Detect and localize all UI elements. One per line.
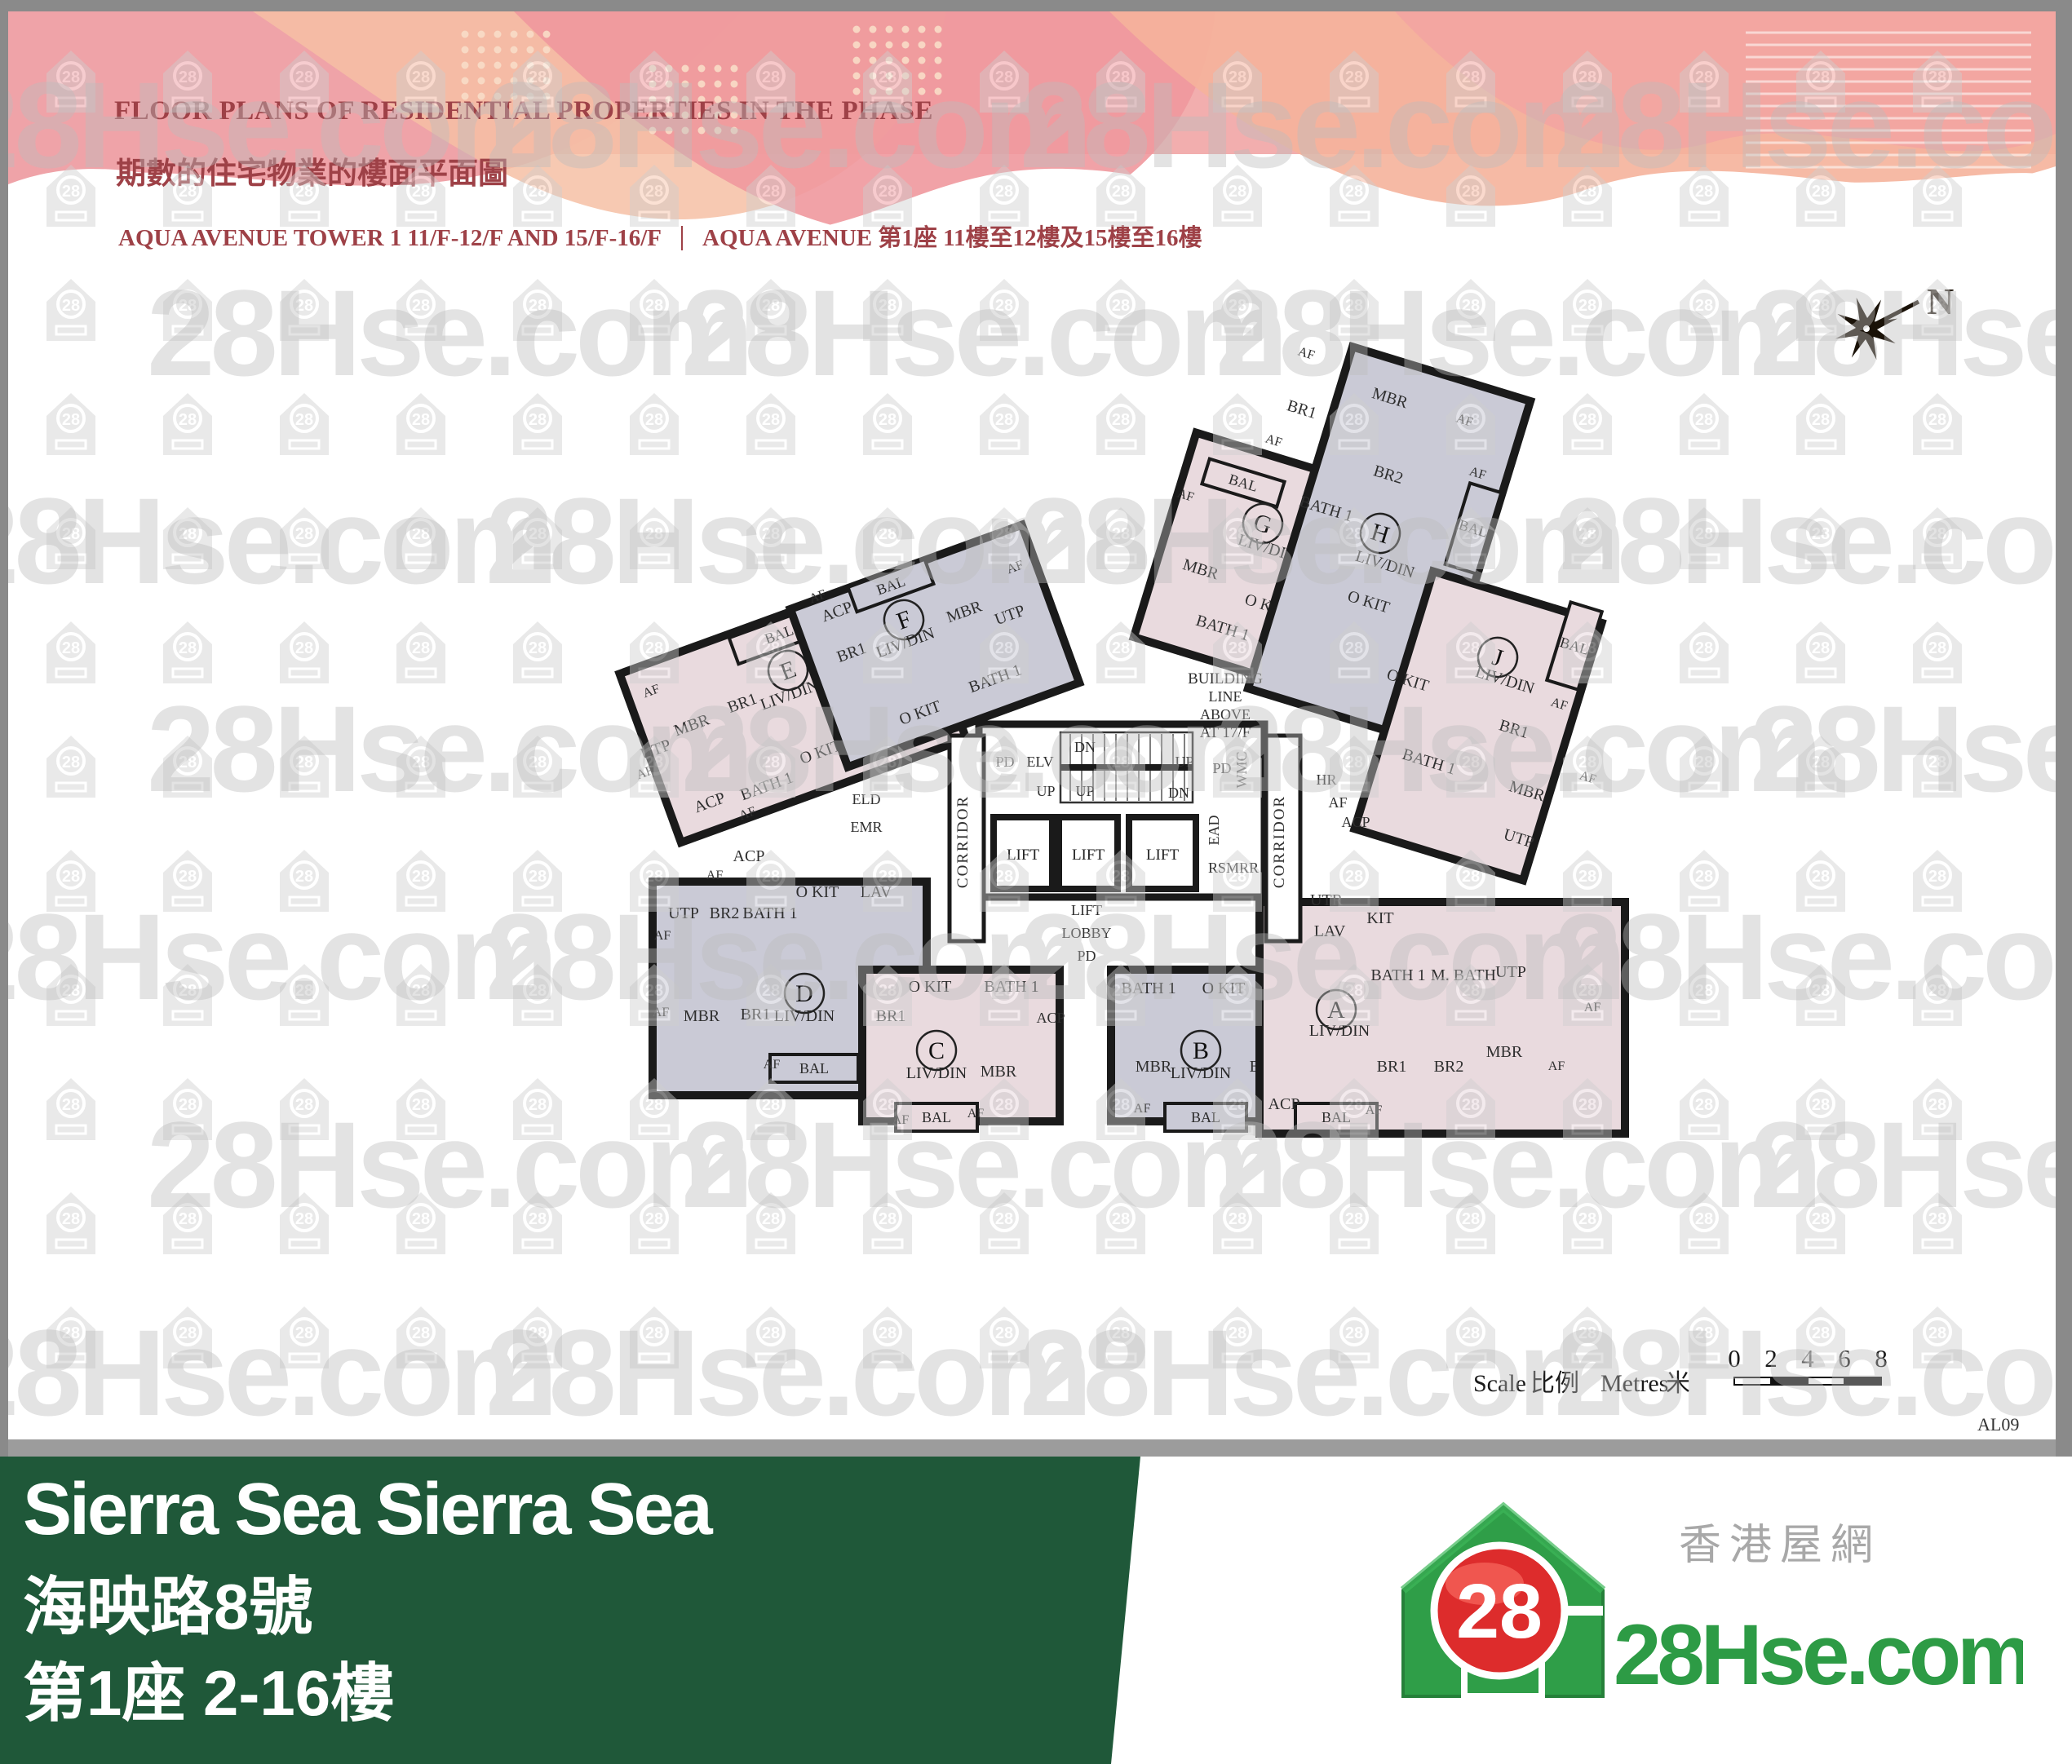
core-label: BUILDING bbox=[1188, 670, 1263, 687]
unit-B-balcony: BAL bbox=[1165, 1103, 1246, 1131]
project-tower-floors: 第1座 2-16樓 bbox=[23, 1642, 394, 1734]
core-label: ABOVE bbox=[1200, 706, 1251, 723]
scale-bar-label: 比例 bbox=[1530, 1370, 1579, 1397]
scale-tick: 6 bbox=[1838, 1344, 1851, 1373]
room-label: BR1 bbox=[1377, 1058, 1407, 1076]
room-label: BR1 bbox=[741, 1006, 771, 1023]
scale-tick: 0 bbox=[1728, 1344, 1741, 1373]
frame-right bbox=[2056, 11, 2072, 1457]
scale-tick: 2 bbox=[1764, 1344, 1778, 1373]
core-label: PD bbox=[1212, 760, 1231, 776]
room-label: AF bbox=[653, 1006, 670, 1019]
room-label: AF bbox=[706, 869, 724, 882]
svg-text:B: B bbox=[1193, 1037, 1209, 1064]
room-label: LIV/DIN bbox=[774, 1007, 835, 1025]
project-banner: Sierra Sea Sierra Sea 海映路8號 第1座 2-16樓 bbox=[0, 1457, 1142, 1764]
svg-text:BAL: BAL bbox=[922, 1109, 951, 1125]
room-label: AF bbox=[1264, 432, 1284, 450]
room-label: AF bbox=[892, 1113, 910, 1127]
svg-text:BAL: BAL bbox=[1191, 1109, 1220, 1125]
room-label: O KIT bbox=[796, 883, 839, 901]
core-label: CORRIDOR bbox=[1271, 795, 1288, 888]
room-label: AF bbox=[1548, 1059, 1565, 1073]
core-label: PD bbox=[1077, 948, 1096, 964]
site-logo: 28 28Hse.com 香港屋網 bbox=[1387, 1492, 2023, 1737]
page-code: AL09 bbox=[1977, 1414, 2019, 1435]
room-label: AF bbox=[654, 929, 671, 943]
room-label: BATH 1 bbox=[742, 904, 797, 922]
core-label: LINE bbox=[1209, 688, 1242, 705]
core-label: AT 17/F bbox=[1200, 724, 1251, 741]
svg-text:BAL: BAL bbox=[799, 1060, 829, 1077]
room-label: AF bbox=[1134, 1102, 1151, 1116]
room-label: O KIT bbox=[909, 978, 952, 996]
room-label: BATH 1 bbox=[1121, 979, 1175, 997]
room-label: BR2 bbox=[710, 904, 740, 922]
room-label: AF bbox=[1296, 345, 1317, 363]
room-label: MBR bbox=[684, 1007, 720, 1025]
core-label: LOBBY bbox=[1061, 925, 1111, 941]
room-label: AF bbox=[1366, 1103, 1383, 1117]
unit-C: BALCLIV/DINBR1O KITBATH 1MBRAFAF bbox=[862, 970, 1060, 1131]
svg-text:LIFT: LIFT bbox=[1007, 847, 1040, 864]
svg-text:LIFT: LIFT bbox=[1146, 847, 1180, 864]
floor-plan-page: FLOOR PLANS OF RESIDENTIAL PROPERTIES IN… bbox=[0, 0, 2072, 1764]
core-label: EMR bbox=[850, 819, 882, 835]
room-label: LIV/DIN bbox=[1171, 1064, 1231, 1082]
room-label: MBR bbox=[1136, 1058, 1172, 1076]
room-label: AF bbox=[764, 1058, 781, 1072]
scale-bar-label: Metres bbox=[1600, 1370, 1668, 1397]
room-label: BATH 1 bbox=[1370, 966, 1425, 984]
room-label: BATH 1 bbox=[984, 978, 1038, 996]
core-label: UP bbox=[1175, 754, 1193, 770]
room-label: AF bbox=[1584, 1001, 1601, 1015]
core-label: LIFT bbox=[1071, 902, 1102, 918]
core-label: HR bbox=[1316, 771, 1336, 788]
svg-text:C: C bbox=[928, 1037, 945, 1064]
scale-tick: 8 bbox=[1875, 1344, 1888, 1373]
core-label: RSMRR bbox=[1208, 860, 1259, 876]
room-label: LAV bbox=[1314, 922, 1346, 940]
footer-divider-band bbox=[0, 1439, 2072, 1457]
core-label: DN bbox=[1074, 739, 1096, 755]
core-label: ACP bbox=[1036, 1010, 1065, 1026]
room-label: BR1 bbox=[1285, 396, 1319, 422]
room-label: LAV bbox=[861, 883, 892, 901]
room-label: MBR bbox=[981, 1063, 1017, 1081]
scale-tick: 4 bbox=[1801, 1344, 1814, 1373]
core-label: EAD bbox=[1206, 816, 1222, 846]
project-name: Sierra Sea Sierra Sea bbox=[23, 1468, 711, 1552]
core-label: AF bbox=[1328, 794, 1347, 811]
frame-top bbox=[0, 0, 2072, 11]
core-label: DN bbox=[1168, 785, 1189, 801]
core-label: CORRIDOR bbox=[954, 795, 972, 888]
compass-north-icon: N bbox=[1835, 281, 1954, 360]
logo-badge: 28 bbox=[1456, 1568, 1543, 1655]
project-address: 海映路8號 bbox=[23, 1556, 312, 1647]
room-label: UTP bbox=[1495, 963, 1526, 981]
room-label: M. BATH bbox=[1431, 966, 1496, 984]
core-label: ELD bbox=[852, 791, 881, 807]
room-label: LIV/DIN bbox=[906, 1064, 967, 1082]
core-label: UP bbox=[1075, 783, 1094, 799]
room-label: AF bbox=[1578, 769, 1598, 787]
scale-bar-label: 米 bbox=[1666, 1370, 1690, 1397]
unit-D-balcony: BAL bbox=[770, 1054, 858, 1082]
room-label: AF bbox=[967, 1107, 985, 1121]
room-label: UTR bbox=[1310, 891, 1344, 909]
logo-text: 28Hse.com bbox=[1614, 1607, 2023, 1703]
house-logo-icon: 28 bbox=[1403, 1507, 1603, 1696]
frame-left bbox=[0, 11, 8, 1457]
room-label: ACP bbox=[733, 847, 765, 865]
room-label: BR1 bbox=[876, 1007, 906, 1025]
scale-bar-label: Scale bbox=[1473, 1370, 1526, 1397]
core-label: UP bbox=[1036, 783, 1055, 799]
room-label: LIV/DIN bbox=[1309, 1022, 1370, 1040]
room-label: ACP bbox=[1268, 1095, 1300, 1113]
svg-text:A: A bbox=[1327, 997, 1345, 1023]
room-label: BR2 bbox=[1434, 1058, 1464, 1076]
core-label: PD bbox=[995, 754, 1014, 770]
svg-text:BAL: BAL bbox=[1322, 1109, 1351, 1125]
svg-text:D: D bbox=[795, 980, 813, 1007]
svg-text:LIFT: LIFT bbox=[1072, 847, 1105, 864]
core-label: ACP bbox=[1341, 814, 1370, 830]
room-label: UTP bbox=[668, 904, 699, 922]
room-label: MBR bbox=[1486, 1043, 1523, 1061]
core-label: ELV bbox=[1026, 754, 1053, 770]
unit-A: BALALIV/DINUTRLAVKITBATH 1M. BATHUTPBR1B… bbox=[1260, 891, 1625, 1134]
scale-bar: Scale比例Metres米02468 bbox=[1473, 1344, 1888, 1397]
core-label: WMC bbox=[1233, 752, 1250, 789]
compass-label: N bbox=[1927, 281, 1954, 322]
logo-tagline: 香港屋網 bbox=[1679, 1522, 1881, 1569]
room-label: KIT bbox=[1366, 909, 1393, 927]
room-label: O KIT bbox=[1202, 979, 1246, 997]
